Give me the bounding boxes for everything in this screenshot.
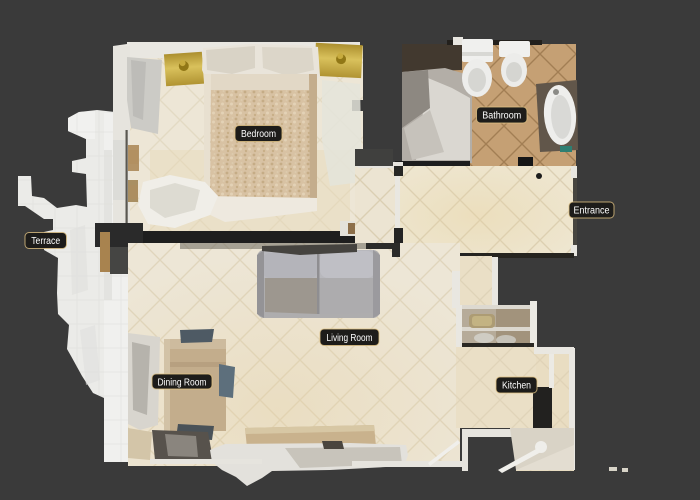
svg-text:Bathroom: Bathroom xyxy=(482,111,521,122)
svg-text:Kitchen: Kitchen xyxy=(502,381,531,392)
svg-text:Entrance: Entrance xyxy=(574,206,610,217)
svg-text:Terrace: Terrace xyxy=(31,236,60,247)
svg-text:Bedroom: Bedroom xyxy=(241,129,276,140)
svg-text:Dining Room: Dining Room xyxy=(158,378,207,389)
svg-text:Living Room: Living Room xyxy=(327,333,373,344)
